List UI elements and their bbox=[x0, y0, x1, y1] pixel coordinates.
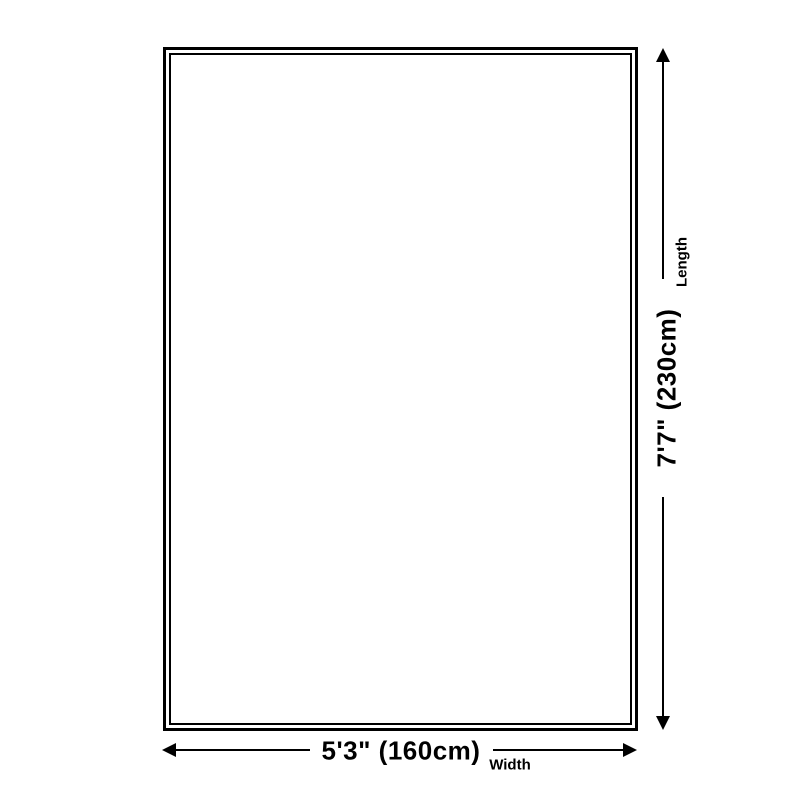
length-line-upper bbox=[662, 60, 664, 279]
width-line-left bbox=[175, 749, 310, 751]
length-value: 7'7" (230cm) bbox=[652, 309, 683, 468]
width-line-right bbox=[493, 749, 624, 751]
rug-inner-border bbox=[169, 53, 632, 725]
length-line-lower bbox=[662, 497, 664, 717]
width-value: 5'3" (160cm) bbox=[322, 736, 481, 767]
arrow-down-icon bbox=[656, 716, 670, 730]
arrow-right-icon bbox=[623, 743, 637, 757]
width-label: Width bbox=[489, 757, 531, 774]
rug-dimension-diagram: Length 7'7" (230cm) 5'3" (160cm) Width bbox=[0, 0, 800, 800]
length-label: Length bbox=[674, 237, 691, 287]
rug-outline bbox=[163, 47, 638, 731]
arrow-left-icon bbox=[162, 743, 176, 757]
